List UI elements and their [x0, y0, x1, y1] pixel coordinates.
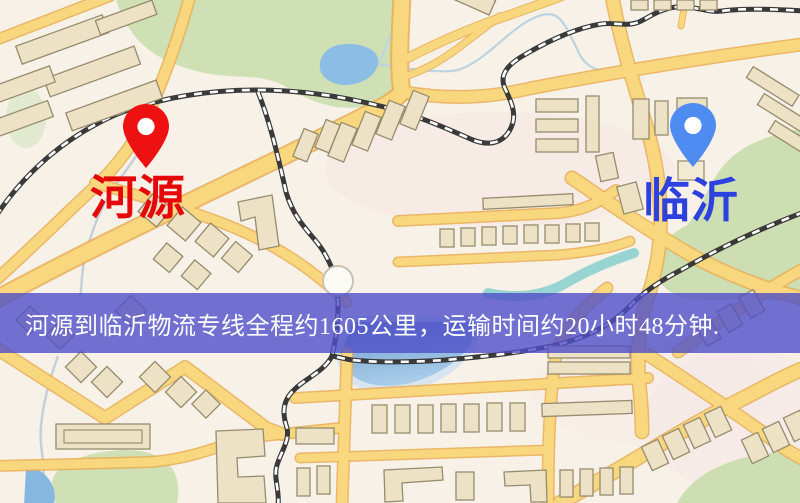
route-info-text: 河源到临沂物流专线全程约1605公里，运输时间约20小时48分钟. [25, 306, 720, 341]
map-graphic [0, 0, 800, 503]
roundabout [323, 266, 353, 296]
origin-city-label: 河源 [90, 176, 186, 223]
destination-city-label: 临沂 [643, 179, 739, 226]
route-info-banner: 河源到临沂物流专线全程约1605公里，运输时间约20小时48分钟. [0, 293, 800, 353]
map-canvas[interactable]: 河源 临沂 河源到临沂物流专线全程约1605公里，运输时间约20小时48分钟. [0, 0, 800, 503]
